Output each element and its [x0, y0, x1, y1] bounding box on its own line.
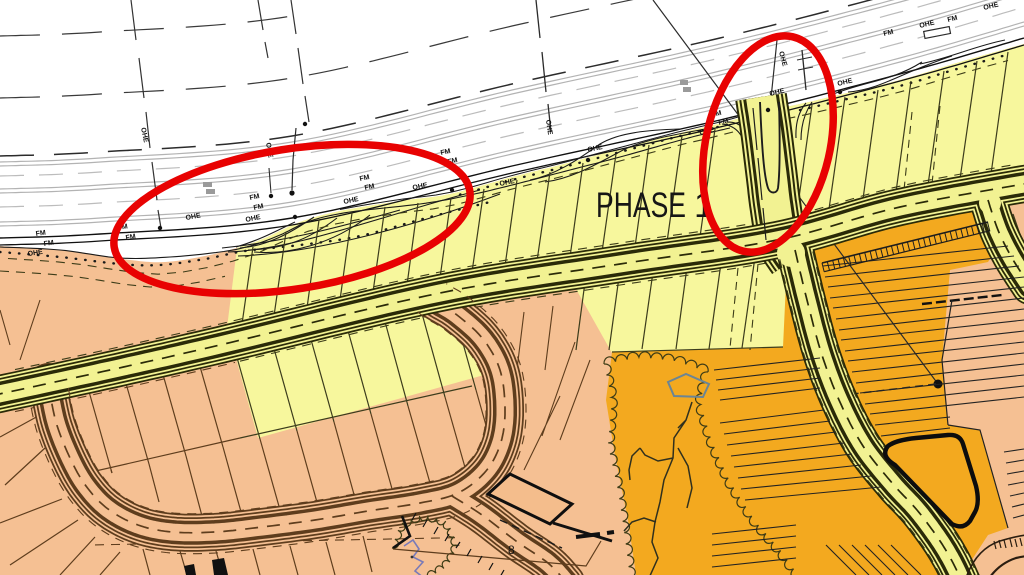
- svg-text:8: 8: [508, 543, 515, 557]
- svg-text:FM: FM: [35, 230, 46, 238]
- svg-text:FM: FM: [43, 240, 54, 248]
- svg-text:PHASE: PHASE: [596, 186, 686, 225]
